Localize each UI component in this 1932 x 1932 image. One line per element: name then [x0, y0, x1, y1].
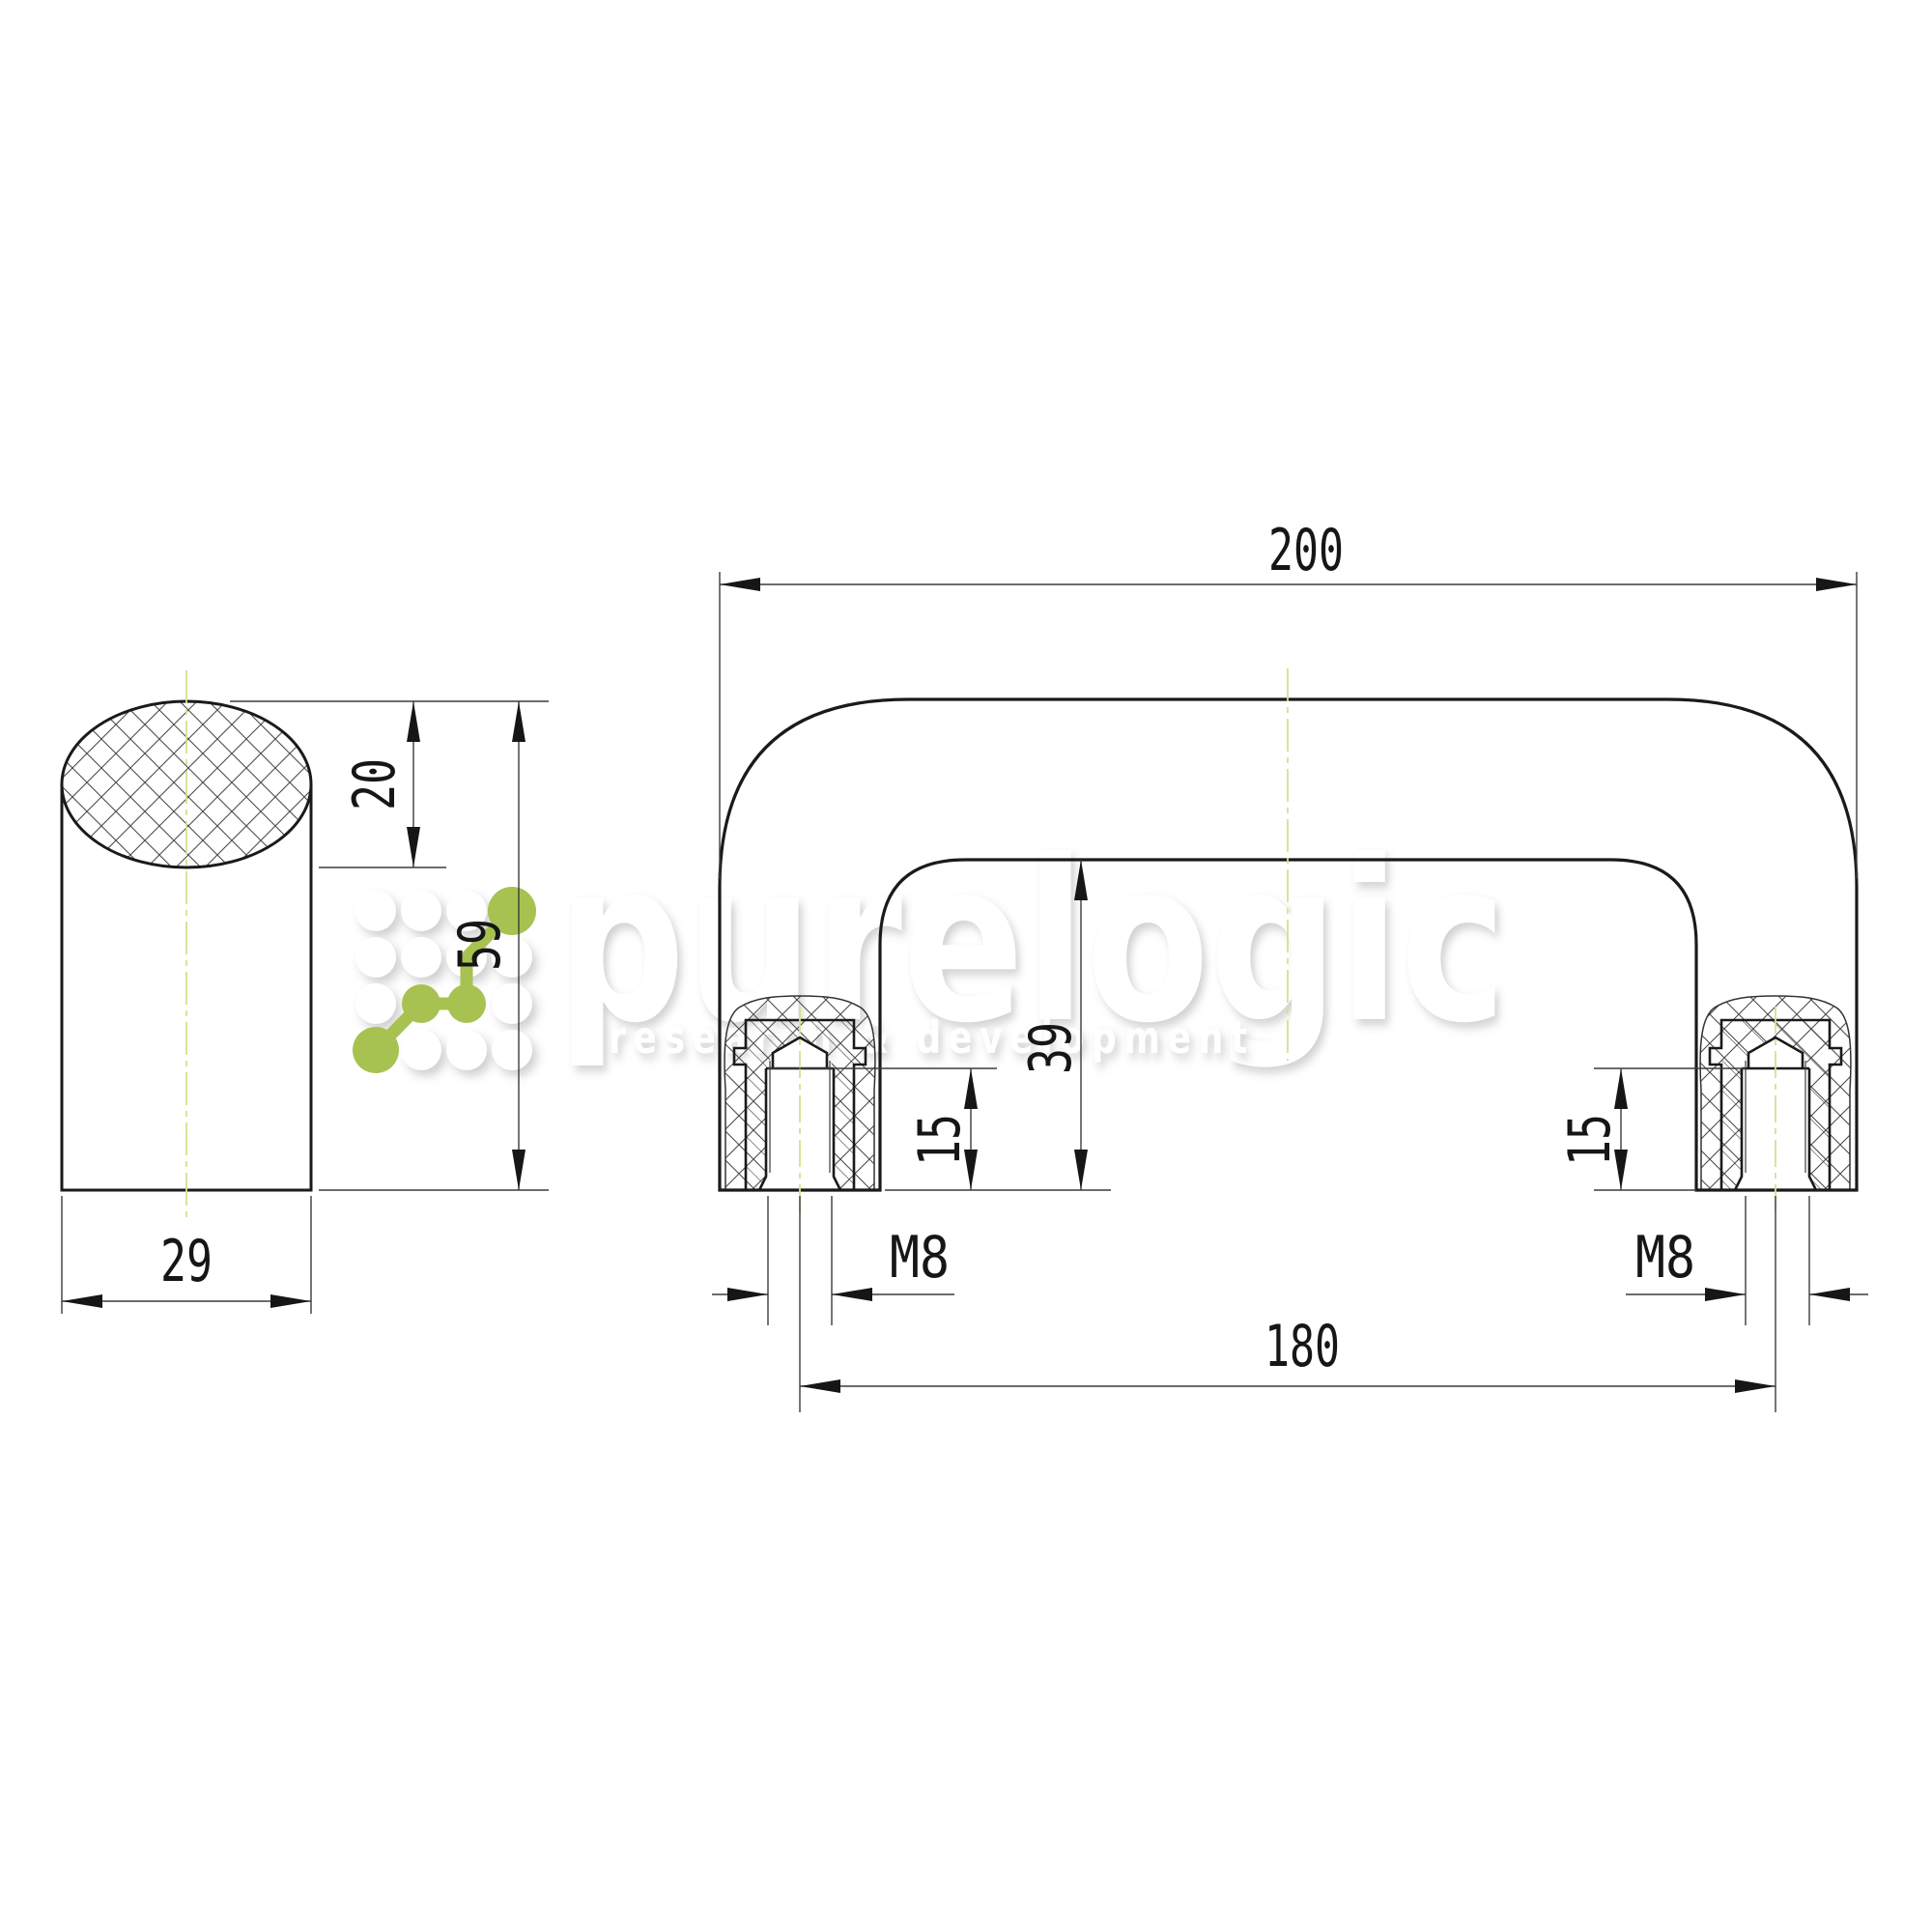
dim-m8-right-label: M8 — [1635, 1224, 1695, 1292]
drawing-canvas: { "watermark": { "brand": "purelogic", "… — [0, 0, 1932, 1932]
dim-20-label: 20 — [341, 758, 409, 810]
watermark-tagline-text: research & development — [609, 1012, 1255, 1065]
side-view — [62, 670, 311, 1219]
logo-green-dot — [353, 1027, 399, 1073]
dim-15-left-label: 15 — [906, 1114, 974, 1166]
logo-green-dot — [402, 984, 440, 1023]
dimension-thread-right: M8 — [1626, 1196, 1868, 1325]
dim-59-label: 59 — [446, 919, 514, 971]
logo-green-dot — [447, 984, 486, 1023]
dim-180-label: 180 — [1264, 1313, 1340, 1380]
technical-drawing: purelogic research & development — [0, 0, 1932, 1932]
dim-15-right-label: 15 — [1556, 1114, 1624, 1166]
dimension-thread-left: M8 — [712, 1196, 954, 1325]
dim-m8-left-label: M8 — [890, 1224, 950, 1292]
brand-logo — [353, 887, 536, 1073]
dim-200-label: 200 — [1268, 517, 1344, 584]
dim-39-label: 39 — [1017, 1022, 1085, 1074]
dim-29-label: 29 — [160, 1228, 213, 1295]
